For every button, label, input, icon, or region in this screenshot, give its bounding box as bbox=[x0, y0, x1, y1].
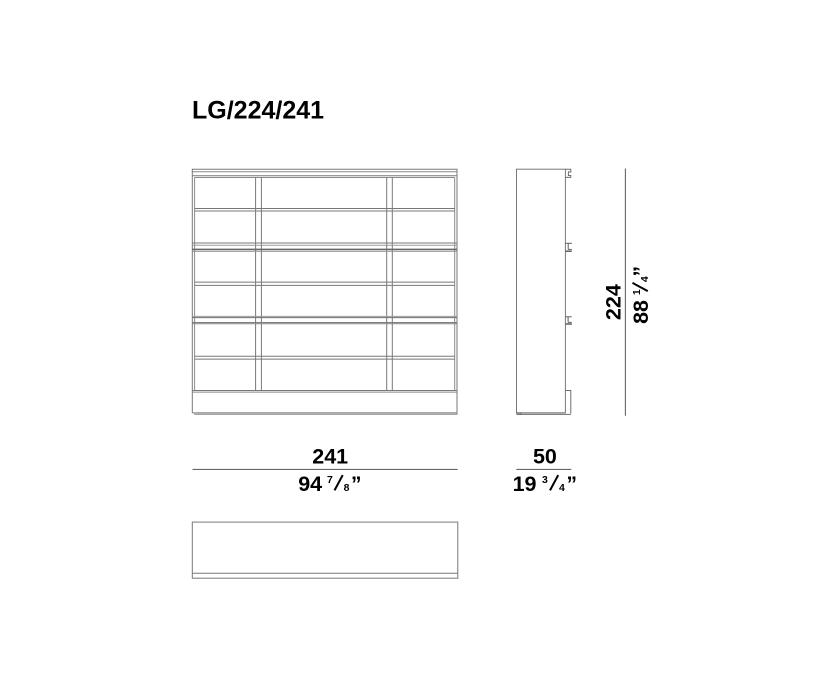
svg-text:3: 3 bbox=[542, 474, 548, 486]
svg-text:94: 94 bbox=[298, 472, 322, 496]
svg-text:50: 50 bbox=[533, 445, 557, 469]
svg-text:”: ” bbox=[630, 266, 653, 277]
svg-text:88: 88 bbox=[629, 300, 653, 324]
svg-text:7: 7 bbox=[327, 474, 333, 486]
svg-text:1: 1 bbox=[631, 289, 643, 295]
svg-text:241: 241 bbox=[312, 445, 348, 469]
svg-text:19: 19 bbox=[513, 472, 537, 496]
svg-text:LG/224/241: LG/224/241 bbox=[192, 97, 324, 125]
svg-text:”: ” bbox=[567, 473, 578, 496]
svg-text:4: 4 bbox=[559, 482, 565, 494]
svg-text:224: 224 bbox=[601, 284, 625, 320]
svg-text:8: 8 bbox=[344, 482, 350, 494]
svg-text:”: ” bbox=[351, 473, 362, 496]
